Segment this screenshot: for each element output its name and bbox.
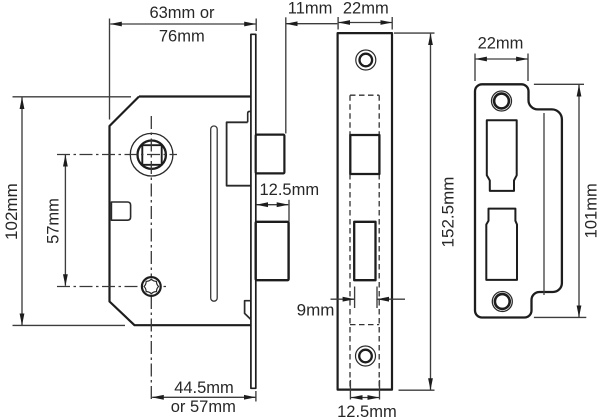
svg-text:57mm: 57mm [44, 198, 62, 244]
svg-text:22mm: 22mm [343, 0, 389, 18]
svg-text:22mm: 22mm [478, 35, 524, 53]
svg-text:12.5mm: 12.5mm [337, 403, 397, 420]
svg-text:44.5mm: 44.5mm [174, 379, 234, 397]
svg-text:102mm: 102mm [2, 183, 21, 240]
svg-text:or 57mm: or 57mm [171, 398, 236, 416]
svg-text:12.5mm: 12.5mm [259, 181, 319, 199]
svg-text:76mm: 76mm [159, 28, 205, 46]
svg-text:63mm or: 63mm or [149, 4, 215, 22]
svg-text:101mm: 101mm [583, 183, 601, 238]
svg-text:9mm: 9mm [297, 300, 335, 319]
svg-text:152.5mm: 152.5mm [439, 177, 458, 248]
svg-text:11mm: 11mm [288, 0, 333, 18]
